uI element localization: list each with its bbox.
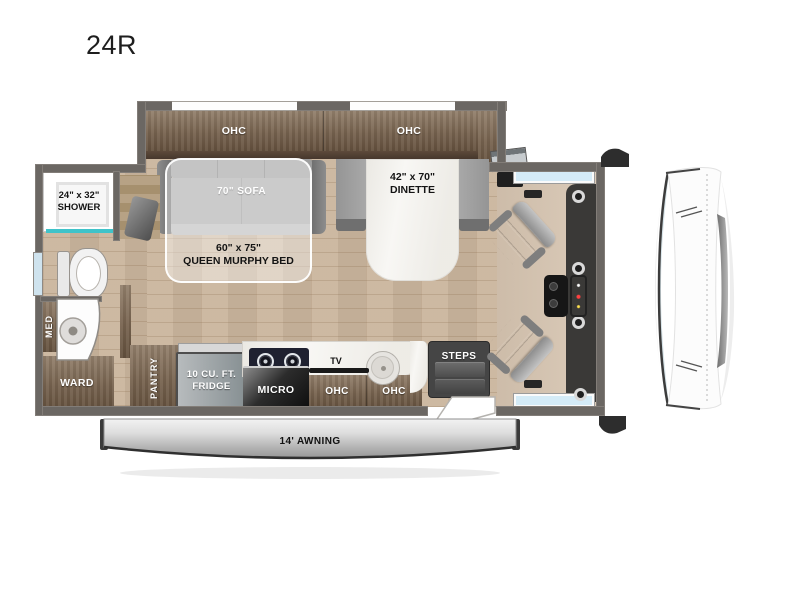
side-mirror-top-icon — [601, 149, 629, 167]
decor-layer — [0, 0, 800, 600]
bath-corner-sink — [57, 299, 100, 360]
floorplan-title: 24R — [86, 30, 137, 61]
side-mirror-bottom-icon — [599, 416, 626, 434]
awning-label-wrap: 14' AWNING — [104, 434, 516, 448]
floorplan-canvas: 24R OHC OHC 70" SOFA 42" x 70" DINETTE 6… — [0, 0, 800, 600]
awning-bar — [100, 419, 520, 479]
front-cap — [655, 168, 734, 410]
awning-label: 14' AWNING — [279, 436, 340, 447]
